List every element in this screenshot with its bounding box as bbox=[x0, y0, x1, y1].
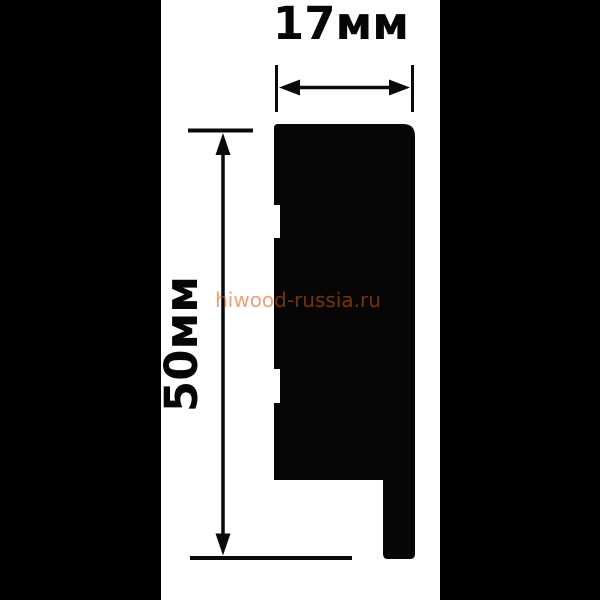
width-dimension-label: 17мм bbox=[273, 0, 409, 50]
left-pillarbox-bar bbox=[0, 0, 161, 600]
width-dim-arrowhead-left bbox=[279, 80, 300, 96]
moulding-profile-shape bbox=[274, 124, 415, 559]
watermark-text: hiwood-russia.ru bbox=[215, 288, 381, 312]
right-pillarbox-bar bbox=[440, 0, 600, 600]
technical-drawing-page: 17мм 50мм hiwood-russia.ru bbox=[0, 0, 600, 600]
height-dimension-label: 50мм bbox=[155, 276, 208, 412]
height-dim-arrowhead-top bbox=[216, 133, 231, 155]
width-dim-arrowhead-right bbox=[389, 80, 410, 96]
drawing-canvas: 17мм 50мм hiwood-russia.ru bbox=[0, 0, 600, 600]
width-dimension-line bbox=[277, 65, 413, 112]
height-dim-arrowhead-bottom bbox=[216, 534, 231, 556]
